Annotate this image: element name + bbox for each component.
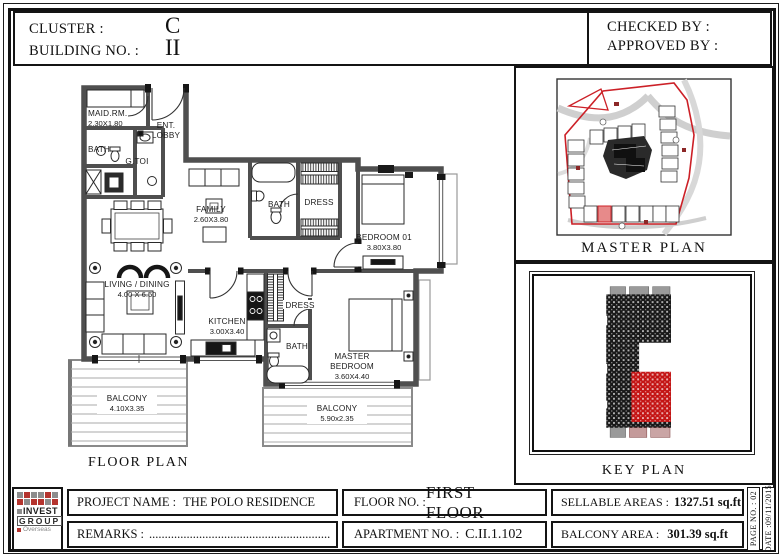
room-label-bath-master: BATH: [286, 342, 308, 351]
logo-squares-row2: [17, 499, 58, 505]
sellable-areas-value: 1327.51 sq.ft: [674, 495, 741, 510]
room-label-bath-maid: BATH: [88, 145, 110, 154]
room-label-maid: MAID.RM.: [88, 109, 127, 118]
key-plan-map: [567, 277, 717, 449]
page-no-text: PAGE NO. : 02: [749, 491, 758, 546]
sellable-areas-label: SELLABLE AREAS :: [561, 495, 669, 510]
building-footprint: [602, 287, 671, 438]
page-no-strip: PAGE NO. : 02: [747, 487, 760, 551]
room-label-bath-family: BATH: [268, 200, 290, 209]
room-label-master-2: BEDROOM: [330, 362, 374, 371]
remarks-value: ........................................…: [149, 527, 330, 542]
room-label-gtoi: G.TOI: [125, 157, 148, 166]
balcony-area-value: 301.39 sq.ft: [667, 527, 728, 542]
header-bar: CLUSTER : C BUILDING NO. : II CHECKED BY…: [13, 11, 772, 66]
project-name-label: PROJECT NAME :: [77, 495, 176, 510]
room-label-living: LIVING / DINING: [104, 280, 169, 289]
floor-no-cell: FLOOR NO. : FIRST FLOOR: [342, 489, 547, 516]
checked-by-label: CHECKED BY :: [607, 19, 710, 36]
building-no-value: II: [165, 35, 180, 61]
room-label-family: FAMILY: [196, 205, 226, 214]
sellable-areas-cell: SELLABLE AREAS : 1327.51 sq.ft: [551, 489, 744, 516]
project-name-value: THE POLO RESIDENCE: [183, 495, 315, 510]
floor-no-value: FIRST FLOOR: [426, 483, 535, 523]
cluster-label: CLUSTER :: [29, 21, 104, 38]
logo-overseas-text: Overseas: [23, 526, 51, 533]
apartment-no-cell: APARTMENT NO. : C.II.1.102: [342, 521, 547, 548]
key-plan-frame: [529, 271, 755, 455]
floor-plan-caption: FLOOR PLAN: [88, 455, 189, 471]
project-name-cell: PROJECT NAME : THE POLO RESIDENCE: [67, 489, 338, 516]
building-no-label: BUILDING NO. :: [29, 43, 139, 60]
apartment-no-label: APARTMENT NO. :: [354, 527, 459, 542]
room-label-dress-bed01: DRESS: [304, 198, 334, 207]
room-dims-balcony-right: 5.90x2.35: [320, 414, 353, 423]
room-label-kitchen: KITCHEN: [208, 317, 245, 326]
logo-invest-text: INVEST: [23, 506, 58, 516]
key-plan-label: KEY PLAN: [516, 463, 772, 479]
master-plan-panel: MASTER PLAN: [514, 66, 774, 262]
room-dims-master: 3.60X4.40: [335, 372, 370, 381]
date-text: DATE :09/11/2015: [764, 485, 773, 552]
apartment-no-value: C.II.1.102: [465, 527, 522, 543]
balcony-area-cell: BALCONY AREA : 301.39 sq.ft: [551, 521, 744, 548]
master-plan-label: MASTER PLAN: [516, 240, 772, 257]
room-label-balcony-left: BALCONY: [107, 394, 148, 403]
room-label-lobby-2: LOBBY: [152, 131, 181, 140]
approved-by-label: APPROVED BY :: [607, 38, 718, 55]
room-label-dress-master: DRESS: [285, 301, 315, 310]
logo-group-text: GROUP: [17, 516, 62, 526]
floor-no-label: FLOOR NO. :: [354, 495, 426, 510]
room-dims-living: 4.00 X 6.50: [118, 290, 157, 299]
balcony-area-label: BALCONY AREA :: [561, 527, 659, 542]
room-dims-family: 2.60X3.80: [194, 215, 229, 224]
remarks-cell: REMARKS : ..............................…: [67, 521, 338, 548]
logo-squares-row1: [17, 492, 58, 498]
room-dims-kitchen: 3.00X3.40: [210, 327, 245, 336]
room-label-bedroom01: BEDROOM 01: [356, 233, 412, 242]
company-logo: INVEST GROUP Overseas: [12, 487, 63, 551]
remarks-label: REMARKS :: [77, 527, 144, 542]
floor-plan-drawing: MAID.RM. 2.30X1.80 ENT. LOBBY BATH G.TOI…: [9, 63, 509, 485]
room-dims-balcony-left: 4.10X3.35: [110, 404, 145, 413]
highlighted-lot: [598, 206, 611, 222]
room-label-master-1: MASTER: [334, 352, 369, 361]
date-strip: DATE :09/11/2015: [762, 487, 775, 551]
header-divider: [587, 13, 589, 64]
room-label-balcony-right: BALCONY: [317, 404, 358, 413]
room-dims-maid: 2.30X1.80: [88, 119, 123, 128]
key-plan-panel: KEY PLAN: [514, 262, 774, 485]
room-label-lobby-1: ENT.: [157, 121, 176, 130]
room-dims-bedroom01: 3.80X3.80: [367, 243, 402, 252]
master-plan-map: [556, 78, 732, 236]
